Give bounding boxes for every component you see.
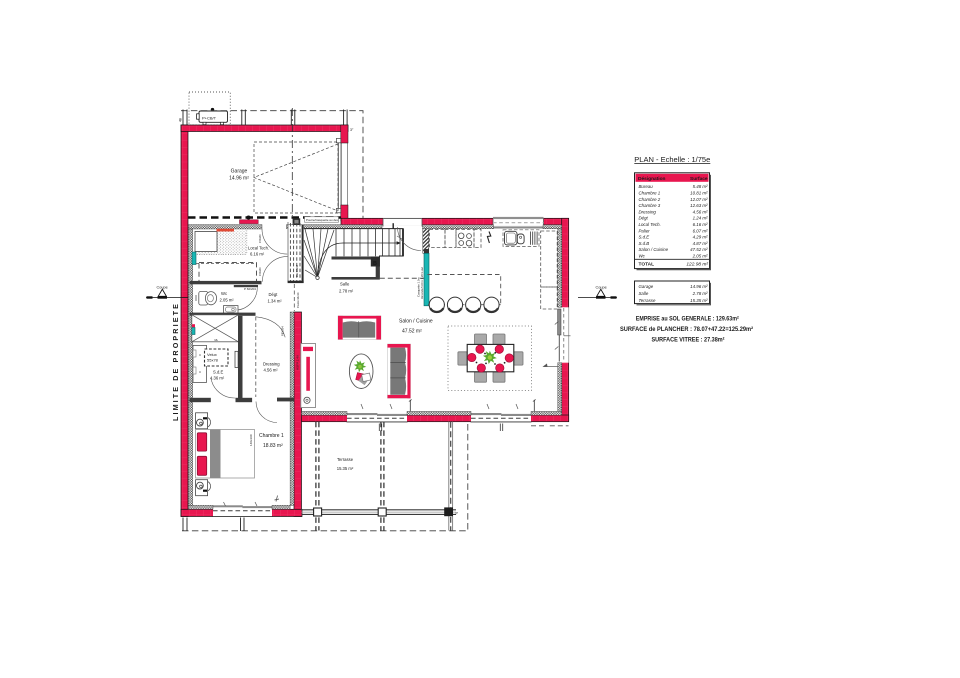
svg-text:15.35 m²: 15.35 m² xyxy=(690,298,708,303)
svg-text:Désignation: Désignation xyxy=(638,176,666,182)
svg-text:47.52 m²: 47.52 m² xyxy=(690,247,708,252)
svg-text:150x60: 150x60 xyxy=(258,234,262,243)
svg-text:Poutre 34x14: Poutre 34x14 xyxy=(296,292,300,308)
svg-text:1.34 m²: 1.34 m² xyxy=(268,299,283,304)
svg-text:2.78 m²: 2.78 m² xyxy=(339,289,354,294)
svg-text:2.05 m²: 2.05 m² xyxy=(220,298,235,303)
svg-text:S.d.B: S.d.B xyxy=(639,241,650,246)
svg-text:1.24 m²: 1.24 m² xyxy=(693,216,708,221)
svg-text:Chambre 1: Chambre 1 xyxy=(639,191,661,196)
svg-text:4.87 m²: 4.87 m² xyxy=(693,241,708,246)
svg-text:B: B xyxy=(373,261,377,267)
svg-text:Coupe: Coupe xyxy=(596,286,607,290)
svg-text:12.63 m²: 12.63 m² xyxy=(690,203,708,208)
svg-text:2.78 m²: 2.78 m² xyxy=(692,291,708,296)
svg-text:Dégt: Dégt xyxy=(639,216,649,221)
svg-text:122.98 m²: 122.98 m² xyxy=(686,262,708,268)
svg-text:14.96 m²: 14.96 m² xyxy=(690,284,708,289)
svg-text:Poutre/Casquette au des.: Poutre/Casquette au des. xyxy=(306,218,339,222)
svg-text:Surface: Surface xyxy=(690,176,708,182)
svg-text:Terrasse: Terrasse xyxy=(639,298,656,303)
svg-text:S.d.E: S.d.E xyxy=(213,370,223,375)
svg-text:150x60: 150x60 xyxy=(258,267,262,276)
svg-text:P83/204: P83/204 xyxy=(281,326,285,336)
svg-text:12.07 m²: 12.07 m² xyxy=(690,197,708,202)
svg-text:Dégt: Dégt xyxy=(269,292,279,297)
svg-text:Salon / Cuisine: Salon / Cuisine xyxy=(399,319,433,325)
svg-text:Salle: Salle xyxy=(340,282,350,287)
svg-text:Velux: Velux xyxy=(207,352,217,357)
svg-text:6.16 m²: 6.16 m² xyxy=(250,252,265,257)
svg-text:PLAN - Echelle : 1/75e: PLAN - Echelle : 1/75e xyxy=(634,155,710,164)
svg-text:LIMITE DE PROPRIETE: LIMITE DE PROPRIETE xyxy=(171,302,180,421)
svg-text:4.36 m²: 4.36 m² xyxy=(210,376,225,381)
svg-text:Dressing: Dressing xyxy=(639,209,657,214)
svg-text:15.35 m²: 15.35 m² xyxy=(337,466,354,471)
svg-text:Chambre 1: Chambre 1 xyxy=(259,433,284,439)
svg-text:48: 48 xyxy=(179,118,183,122)
svg-text:4.29 m²: 4.29 m² xyxy=(693,235,708,240)
svg-text:Chambre 2: Chambre 2 xyxy=(639,197,661,202)
svg-text:HSFP 2.49: HSFP 2.49 xyxy=(296,355,300,370)
svg-text:Dressing: Dressing xyxy=(263,362,280,367)
svg-text:Local Tech.: Local Tech. xyxy=(248,246,269,251)
svg-text:Garage: Garage xyxy=(231,169,248,175)
svg-text:P+CB/T: P+CB/T xyxy=(202,115,217,120)
svg-text:4.56 m²: 4.56 m² xyxy=(264,368,279,373)
svg-text:Local Tech.: Local Tech. xyxy=(639,222,661,227)
svg-text:6.16 m²: 6.16 m² xyxy=(693,222,708,227)
svg-text:10.81 m²: 10.81 m² xyxy=(690,191,708,196)
svg-text:TOTAL: TOTAL xyxy=(639,262,655,268)
svg-text:18.83 m²: 18.83 m² xyxy=(263,443,283,449)
svg-text:Palier: Palier xyxy=(639,228,651,233)
svg-text:Chambre 3: Chambre 3 xyxy=(639,203,661,208)
svg-text:SURFACE de PLANCHER : 78.07+47: SURFACE de PLANCHER : 78.07+47.22=125.29… xyxy=(620,326,754,333)
svg-text:Wc: Wc xyxy=(639,254,646,259)
svg-text:EMPRISE au SOL GENERALE : 129.: EMPRISE au SOL GENERALE : 129.63m² xyxy=(636,316,740,323)
svg-text:ML: ML xyxy=(215,338,219,342)
svg-text:140x190: 140x190 xyxy=(249,434,253,446)
svg-text:Esc 16x18: Esc 16x18 xyxy=(295,264,299,277)
svg-text:3°: 3° xyxy=(350,128,354,132)
svg-text:5.48 m²: 5.48 m² xyxy=(693,184,708,189)
svg-text:P 60/204: P 60/204 xyxy=(244,287,256,291)
svg-text:Salle: Salle xyxy=(639,291,649,296)
svg-text:6.07 m²: 6.07 m² xyxy=(693,228,708,233)
svg-text:Bureau: Bureau xyxy=(639,184,654,189)
svg-text:Wc: Wc xyxy=(221,291,227,296)
svg-text:Veranda 5.00 x 1.20m avt: Veranda 5.00 x 1.20m avt xyxy=(420,267,424,299)
svg-text:Salon / Cuisine: Salon / Cuisine xyxy=(639,247,669,252)
svg-text:4.56 m²: 4.56 m² xyxy=(693,209,708,214)
svg-text:Terrasse: Terrasse xyxy=(337,457,354,462)
svg-text:55x78: 55x78 xyxy=(207,358,219,363)
svg-text:47.52 m²: 47.52 m² xyxy=(402,329,422,335)
svg-text:Garage: Garage xyxy=(639,284,654,289)
svg-text:S.d.E: S.d.E xyxy=(639,235,650,240)
svg-text:SURFACE VITREE : 27.38m²: SURFACE VITREE : 27.38m² xyxy=(652,336,726,343)
svg-text:14.96 m²: 14.96 m² xyxy=(229,176,249,182)
svg-text:2.05 m²: 2.05 m² xyxy=(692,254,708,259)
